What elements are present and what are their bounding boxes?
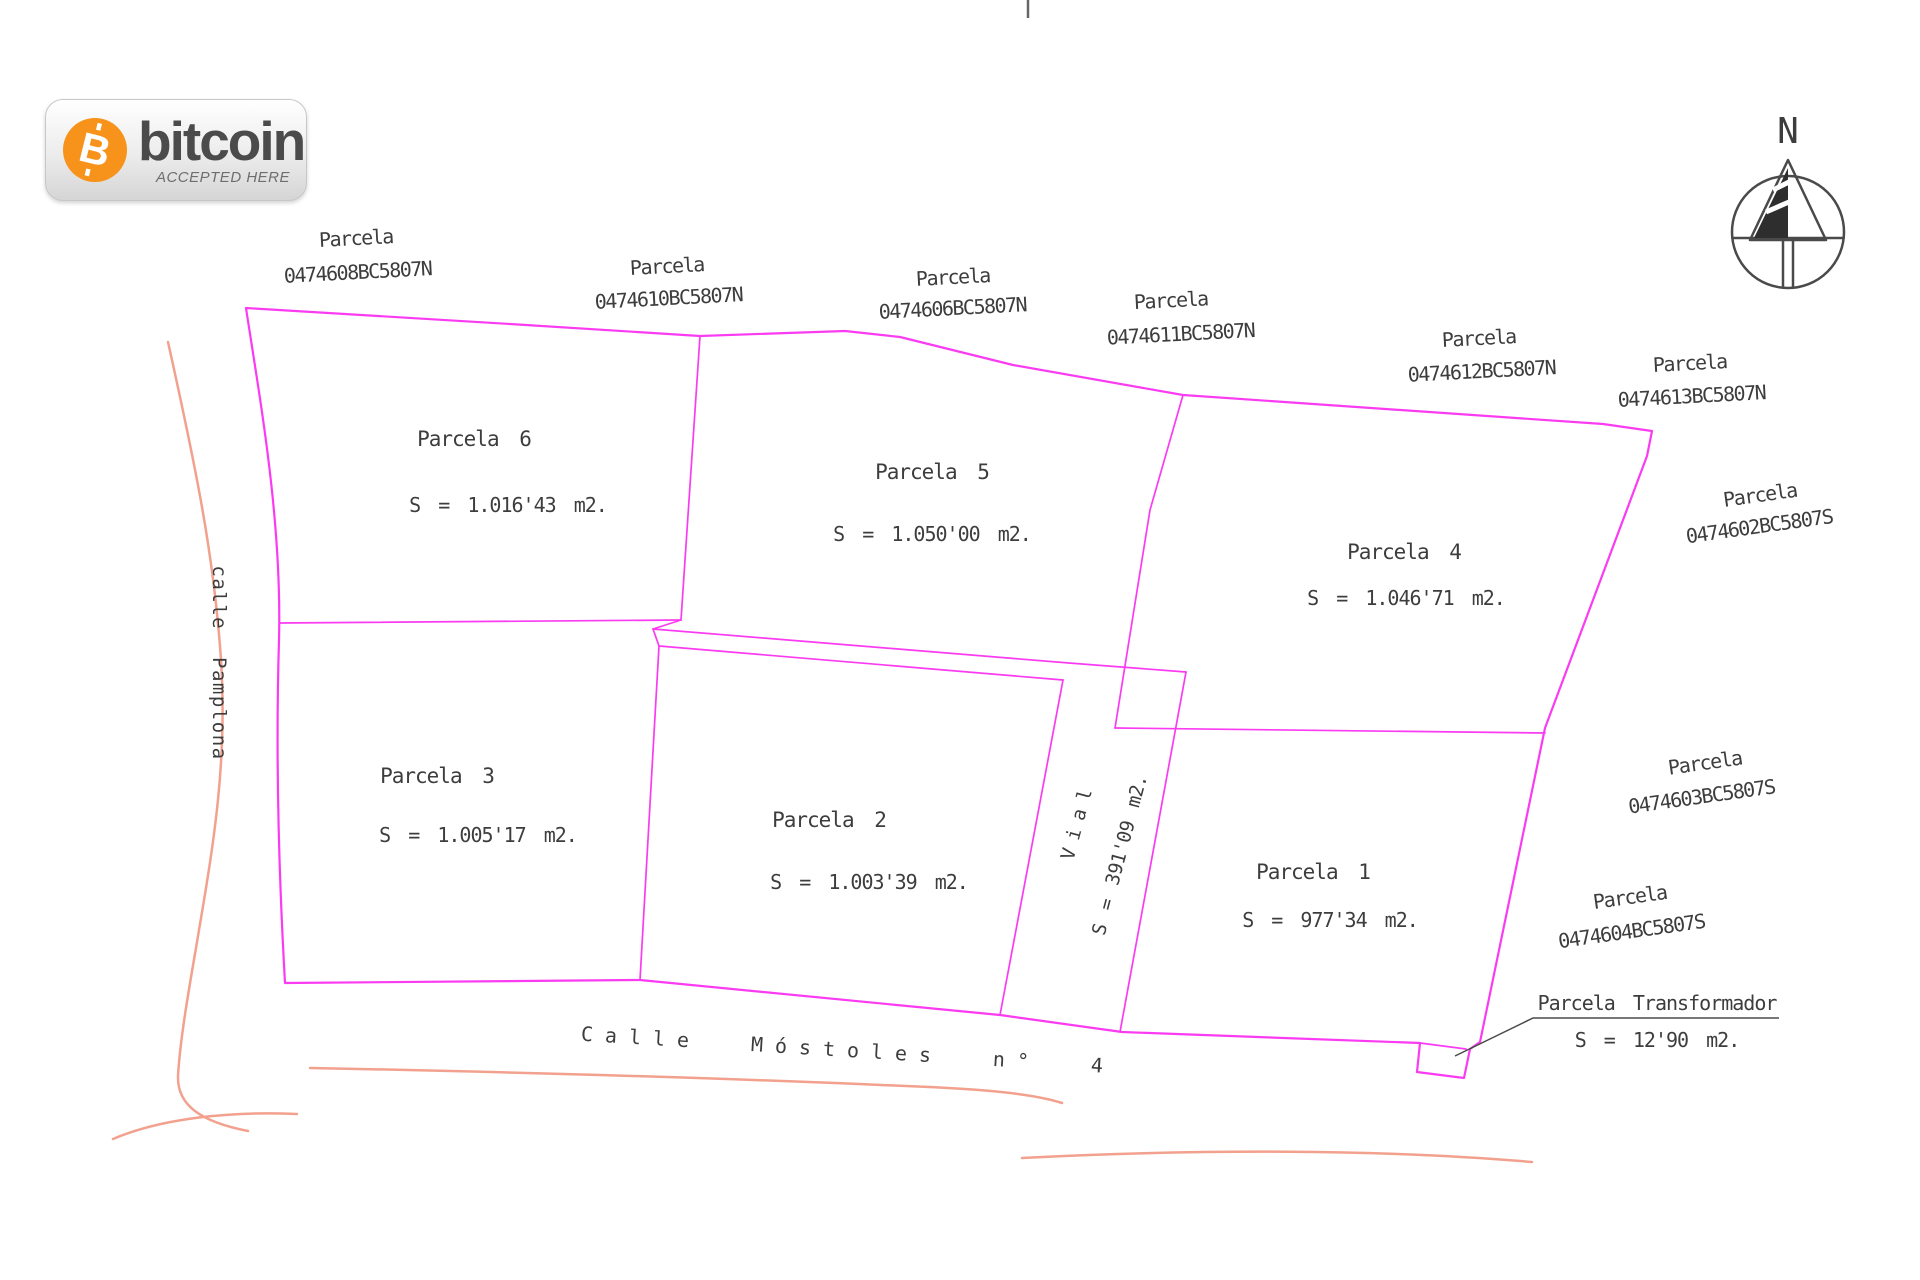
ref-label-0474608: Parcela 0474608BC5807N bbox=[282, 222, 433, 288]
ref-code: 0474606BC5807N bbox=[878, 292, 1027, 324]
corridor-top-line bbox=[653, 629, 1186, 672]
ref-code: 0474611BC5807N bbox=[1106, 318, 1255, 350]
ref-title: Parcela bbox=[1667, 746, 1744, 780]
ref-label-0474602: Parcela 0474602BC5807S bbox=[1680, 473, 1834, 548]
site-plan: N Parcela 0474608BC5807N Parcela 0474610… bbox=[0, 0, 1920, 1280]
ref-code: 0474612BC5807N bbox=[1407, 355, 1556, 387]
street-name-calle-mostoles: Calle Móstoles n° 4 bbox=[580, 1022, 1115, 1079]
ref-code: 0474608BC5807N bbox=[283, 256, 432, 288]
bitcoin-brand-wordmark: bitcoin bbox=[138, 114, 290, 169]
ref-label-0474604: Parcela 0474604BC5807S bbox=[1552, 875, 1707, 953]
ref-code: 0474610BC5807N bbox=[594, 282, 743, 314]
ref-label-0474613: Parcela 0474613BC5807N bbox=[1615, 347, 1766, 412]
ref-code: 0474613BC5807N bbox=[1617, 380, 1766, 412]
ref-code: 0474603BC5807S bbox=[1627, 774, 1777, 818]
divider-jog bbox=[653, 620, 681, 646]
ref-label-0474606: Parcela 0474606BC5807N bbox=[876, 261, 1027, 324]
north-compass: N bbox=[1732, 111, 1844, 288]
ref-title: Parcela bbox=[1652, 349, 1727, 377]
ref-code: 0474602BC5807S bbox=[1684, 504, 1834, 548]
ref-label-0474611: Parcela 0474611BC5807N bbox=[1104, 284, 1255, 350]
transformer-box bbox=[1420, 1043, 1466, 1049]
compass-stem bbox=[1783, 238, 1793, 287]
parcel-1-label: Parcela 1 S = 977'34 m2. bbox=[1242, 860, 1418, 932]
parcel-area: S = 1.016'43 m2. bbox=[409, 493, 607, 517]
parcel-5-label: Parcela 5 S = 1.050'00 m2. bbox=[833, 460, 1031, 546]
divider-p4-p1 bbox=[1115, 728, 1545, 733]
parcel-outer-boundary bbox=[246, 308, 1652, 1078]
bitcoin-badge-text: bitcoin ACCEPTED HERE bbox=[138, 114, 290, 186]
ref-title: Parcela bbox=[1591, 880, 1668, 914]
bitcoin-coin-icon: B bbox=[62, 117, 128, 183]
parcel-name: Parcela 3 bbox=[380, 764, 494, 788]
divider-p3-p2 bbox=[640, 646, 659, 980]
ref-title: Parcela bbox=[629, 252, 704, 280]
parcel-area: S = 1.046'71 m2. bbox=[1307, 586, 1505, 610]
ref-label-0474610: Parcela 0474610BC5807N bbox=[592, 250, 743, 314]
corridor-bottom-line bbox=[659, 646, 1063, 680]
parcel-name: Parcela 5 bbox=[875, 460, 989, 484]
north-label: N bbox=[1777, 111, 1799, 152]
divider-p6-p5 bbox=[681, 336, 700, 620]
road-edge-bottom-right bbox=[1022, 1152, 1532, 1162]
parcel-name: Parcela 2 bbox=[772, 808, 886, 832]
vial-name: Vial bbox=[1057, 778, 1099, 863]
ref-title: Parcela bbox=[1133, 286, 1208, 314]
parcel-name: Parcela 1 bbox=[1256, 860, 1370, 884]
ref-label-0474603: Parcela 0474603BC5807S bbox=[1622, 742, 1777, 819]
ref-label-0474612: Parcela 0474612BC5807N bbox=[1405, 322, 1556, 387]
transformer-name: Parcela Transformador bbox=[1538, 991, 1778, 1015]
ref-title: Parcela bbox=[1441, 324, 1516, 352]
parcel-4-label: Parcela 4 S = 1.046'71 m2. bbox=[1307, 540, 1505, 610]
parcel-6-label: Parcela 6 S = 1.016'43 m2. bbox=[409, 427, 607, 517]
transformer-label: Parcela Transformador S = 12'90 m2. bbox=[1538, 991, 1778, 1052]
ref-title: Parcela bbox=[1722, 478, 1799, 512]
parcel-area: S = 977'34 m2. bbox=[1242, 908, 1418, 932]
parcel-3-label: Parcela 3 S = 1.005'17 m2. bbox=[379, 764, 577, 847]
transformer-area: S = 12'90 m2. bbox=[1575, 1028, 1740, 1052]
parcel-name: Parcela 4 bbox=[1347, 540, 1461, 564]
vial-left-line bbox=[1000, 680, 1063, 1015]
parcel-area: S = 1.003'39 m2. bbox=[770, 870, 968, 894]
parcel-name: Parcela 6 bbox=[417, 427, 531, 451]
road-edge-left bbox=[168, 342, 248, 1131]
parcel-2-label: Parcela 2 S = 1.003'39 m2. bbox=[770, 808, 968, 894]
bitcoin-badge: B bitcoin ACCEPTED HERE bbox=[45, 99, 307, 201]
road-edge-left-bottom-arc bbox=[113, 1113, 297, 1139]
ref-code: 0474604BC5807S bbox=[1557, 909, 1707, 953]
parcel-area: S = 1.050'00 m2. bbox=[833, 522, 1031, 546]
divider-p5-p4 bbox=[1115, 395, 1183, 728]
divider-p6-p3 bbox=[280, 620, 681, 623]
street-name-calle-pamplona: calle Pamplona bbox=[208, 565, 230, 760]
ref-title: Parcela bbox=[915, 263, 990, 291]
parcel-area: S = 1.005'17 m2. bbox=[379, 823, 577, 847]
road-edge-bottom bbox=[310, 1068, 1062, 1103]
bitcoin-tagline: ACCEPTED HERE bbox=[156, 169, 290, 186]
ref-title: Parcela bbox=[318, 224, 393, 252]
